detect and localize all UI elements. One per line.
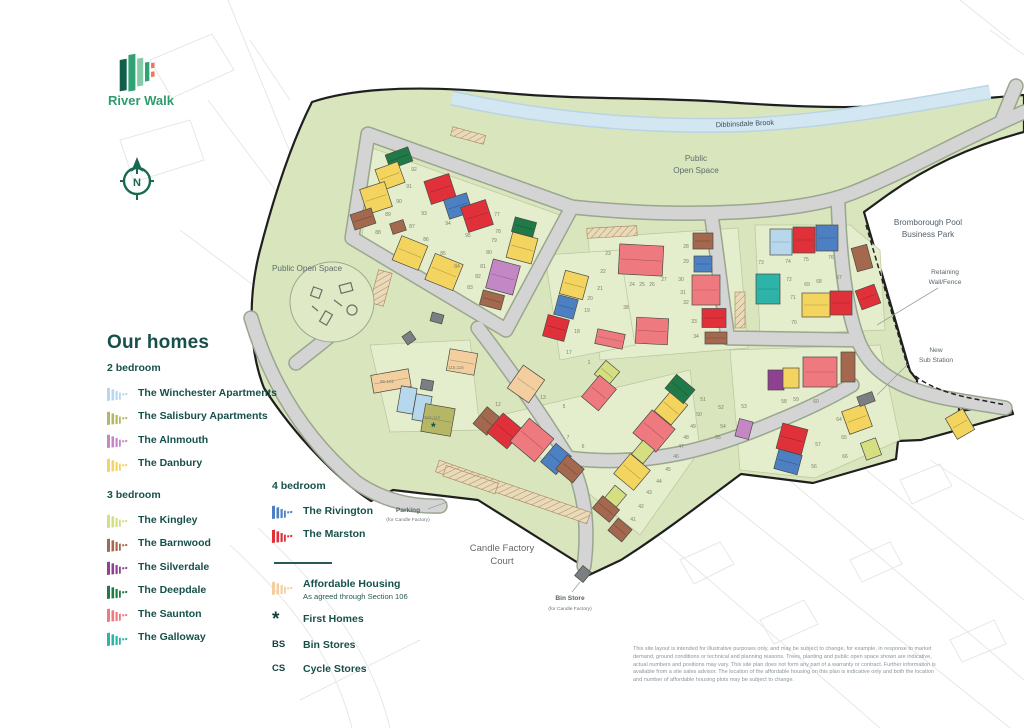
house-type-icon bbox=[107, 384, 129, 401]
label-retaining-wall: Retaining bbox=[931, 269, 959, 276]
bin-stores-symbol: BS bbox=[272, 639, 294, 651]
plot-number: 26 bbox=[649, 282, 655, 288]
plot-number: 51 bbox=[700, 397, 706, 403]
house-plot bbox=[692, 275, 720, 305]
legend-item: The Galloway bbox=[107, 626, 282, 650]
plot-number: 89 bbox=[385, 212, 391, 218]
label-bin-store: Bin Store bbox=[555, 595, 585, 602]
legend-item-label: The Salisbury Apartments bbox=[138, 410, 268, 422]
plot-number: 30 bbox=[678, 277, 684, 283]
house-plot bbox=[693, 233, 713, 249]
plot-number: 5 bbox=[563, 404, 566, 410]
plot-number: 48 bbox=[683, 435, 689, 441]
label-public-open-space-top-2: Open Space bbox=[673, 166, 719, 175]
legend-item-label: The Deepdale bbox=[138, 584, 206, 596]
plot-number: 21 bbox=[597, 286, 603, 292]
legend-title: Our homes bbox=[107, 332, 209, 354]
plot-number: 24 bbox=[629, 282, 635, 288]
legend-group-4bed: 4 bedroom The Rivington bbox=[272, 480, 462, 546]
legend-item-label: The Galloway bbox=[138, 631, 206, 643]
plot-number: 70 bbox=[791, 320, 797, 326]
cycle-stores-label: Cycle Stores bbox=[303, 663, 367, 675]
plot-number: 33 bbox=[691, 319, 697, 325]
first-homes-label: First Homes bbox=[303, 613, 364, 625]
house-plot bbox=[446, 349, 477, 376]
legend-group-title: 2 bedroom bbox=[107, 362, 282, 374]
legend-item: The Kingley bbox=[107, 508, 282, 532]
plot-number: 71 bbox=[790, 295, 796, 301]
label-public-open-space-left: Public Open Space bbox=[272, 264, 343, 273]
affordable-housing-label: Affordable Housing bbox=[303, 578, 408, 590]
bin-stores-label: Bin Stores bbox=[303, 639, 356, 651]
house-plot bbox=[618, 244, 664, 276]
plot-number: 115,116 bbox=[448, 365, 464, 370]
plot-number: 49 bbox=[690, 424, 696, 430]
label-business-park-2: Business Park bbox=[902, 230, 955, 239]
plot-number: 25 bbox=[639, 282, 645, 288]
plot-number: 90 bbox=[396, 199, 402, 205]
plot-number: 18 bbox=[574, 329, 580, 335]
plot-number: 73 bbox=[758, 260, 764, 266]
legend-item: The Rivington bbox=[272, 499, 462, 523]
plot-number: 94 bbox=[445, 221, 451, 227]
legend-item: The Deepdale bbox=[107, 579, 282, 603]
house-type-icon bbox=[107, 455, 129, 472]
plot-number: 42 bbox=[638, 504, 644, 510]
legend-group-2bed: 2 bedroom The Winchester Apartments bbox=[107, 362, 282, 475]
legend-item-label: The Rivington bbox=[303, 505, 373, 517]
plot-number: 79 bbox=[491, 238, 497, 244]
plot-number: 95 bbox=[465, 233, 471, 239]
bin-store-leader bbox=[572, 582, 580, 592]
house-plot bbox=[756, 274, 780, 304]
plot-number: 81 bbox=[480, 264, 486, 270]
legend-item: The Saunton bbox=[107, 602, 282, 626]
legend-item: The Salisbury Apartments bbox=[107, 405, 282, 429]
house-type-icon bbox=[107, 431, 129, 448]
legend-item: The Silverdale bbox=[107, 555, 282, 579]
legend-item-label: The Saunton bbox=[138, 608, 202, 620]
plot-number: 78 bbox=[495, 229, 501, 235]
house-plot bbox=[694, 256, 712, 272]
plot-number: 55 bbox=[715, 435, 721, 441]
plot-number: 43 bbox=[646, 490, 652, 496]
legend-group-title: 4 bedroom bbox=[272, 480, 462, 492]
legend-affordable-housing: Affordable Housing As agreed through Sec… bbox=[272, 578, 462, 601]
label-retaining-wall-2: Wall/Fence bbox=[929, 279, 962, 286]
plot-number: 34 bbox=[693, 334, 699, 340]
plot-number: 31 bbox=[680, 290, 686, 296]
legend-item-label: The Marston bbox=[303, 528, 365, 540]
plot-number: 72 bbox=[786, 277, 792, 283]
label-candle-factory-court-2: Court bbox=[490, 556, 514, 567]
house-type-icon bbox=[272, 526, 294, 543]
house-plot bbox=[830, 291, 852, 315]
plot-number: 46 bbox=[673, 454, 679, 460]
plot-number: 66 bbox=[842, 454, 848, 460]
legend-item: The Barnwood bbox=[107, 532, 282, 556]
affordable-housing-sublabel: As agreed through Section 106 bbox=[303, 592, 408, 601]
first-homes-star: * bbox=[431, 420, 436, 434]
north-compass-icon: N bbox=[115, 155, 159, 201]
house-plot bbox=[635, 317, 668, 345]
plot-number: 96-101 bbox=[380, 379, 395, 384]
legend-item-label: The Alnmouth bbox=[138, 434, 208, 446]
label-public-open-space-top: Public bbox=[685, 154, 707, 163]
house-plot bbox=[793, 227, 815, 253]
plot-number: 29 bbox=[683, 259, 689, 265]
plot-number: 65 bbox=[841, 435, 847, 441]
compass-n: N bbox=[133, 177, 141, 189]
legend-item: The Danbury bbox=[107, 452, 282, 476]
play-area bbox=[290, 262, 374, 342]
legend-item: The Alnmouth bbox=[107, 428, 282, 452]
plot-number: 64 bbox=[836, 417, 842, 423]
plot-number: 75 bbox=[803, 257, 809, 263]
affordable-housing-icon bbox=[272, 578, 294, 595]
site-plan-page: 9291908988878685848382818079787795949324… bbox=[0, 0, 1024, 728]
house-plot bbox=[802, 293, 830, 317]
house-type-icon bbox=[107, 558, 129, 575]
house-type-icon bbox=[107, 582, 129, 599]
plot-number: 74 bbox=[785, 259, 791, 265]
label-substation-2: Sub Station bbox=[919, 357, 953, 364]
plot-number: 50 bbox=[696, 412, 702, 418]
house-plot bbox=[702, 309, 726, 328]
house-type-icon bbox=[107, 408, 129, 425]
plot-number: 91 bbox=[406, 184, 412, 190]
plot-number: 87 bbox=[409, 224, 415, 230]
disclaimer-text: This site layout is intended for illustr… bbox=[633, 646, 941, 685]
plot-number: 53 bbox=[741, 404, 747, 410]
plot-number: 22 bbox=[600, 269, 606, 275]
plot-number: 44 bbox=[656, 479, 662, 485]
plot-number: 80 bbox=[486, 250, 492, 256]
house-type-icon bbox=[107, 535, 129, 552]
plot-number: 57 bbox=[815, 442, 821, 448]
plot-number: 1 bbox=[588, 360, 591, 366]
plot-number: 56 bbox=[811, 464, 817, 470]
plot-number: 54 bbox=[720, 424, 726, 430]
house-plot bbox=[770, 229, 792, 255]
label-business-park: Bromborough Pool bbox=[894, 218, 962, 227]
plot-number: 69 bbox=[804, 282, 810, 288]
plot-number: 28 bbox=[683, 244, 689, 250]
store-unit bbox=[420, 379, 434, 391]
plot-number: 12 bbox=[495, 402, 501, 408]
legend-item-label: The Silverdale bbox=[138, 561, 209, 573]
plot-number: 85 bbox=[440, 251, 446, 257]
legend-first-homes: * First Homes bbox=[272, 613, 462, 627]
plot-number: 17 bbox=[566, 350, 572, 356]
label-bin-store-2: (for Candle Factory) bbox=[548, 606, 592, 612]
plot-number: 32 bbox=[683, 300, 689, 306]
legend-item-label: The Barnwood bbox=[138, 537, 211, 549]
legend-column-left: 2 bedroom The Winchester Apartments bbox=[107, 362, 282, 663]
label-substation: New bbox=[929, 347, 942, 354]
first-homes-symbol: * bbox=[272, 613, 294, 627]
legend-divider bbox=[274, 562, 332, 564]
plot-number: 86 bbox=[423, 237, 429, 243]
legend-item-label: The Kingley bbox=[138, 514, 198, 526]
plot-number: 76 bbox=[828, 255, 834, 261]
legend-column-right: 4 bedroom The Rivington bbox=[272, 480, 462, 687]
plot-number: 84 bbox=[454, 264, 460, 270]
house-plot bbox=[803, 357, 837, 387]
plot-number: 7 bbox=[567, 435, 570, 441]
plot-number: 6 bbox=[582, 444, 585, 450]
house-type-icon bbox=[272, 502, 294, 519]
plot-number: 68 bbox=[816, 279, 822, 285]
legend-group-title: 3 bedroom bbox=[107, 489, 282, 501]
plot-number: 77 bbox=[494, 212, 500, 218]
legend-item-label: The Danbury bbox=[138, 457, 202, 469]
plot-number: 58 bbox=[781, 399, 787, 405]
plot-number: 67 bbox=[836, 275, 842, 281]
brand-name: River Walk bbox=[108, 93, 174, 108]
plot-number: 19 bbox=[584, 308, 590, 314]
plot-number: 60 bbox=[813, 399, 819, 405]
plot-number: 27 bbox=[661, 277, 667, 283]
house-plot bbox=[816, 225, 838, 251]
plot-number: 88 bbox=[375, 230, 381, 236]
legend-item: The Winchester Apartments bbox=[107, 381, 282, 405]
plot-number: 52 bbox=[718, 405, 724, 411]
plot-number: 59 bbox=[793, 397, 799, 403]
plot-number: 23 bbox=[605, 251, 611, 257]
plot-number: 83 bbox=[467, 285, 473, 291]
plot-number: 47 bbox=[678, 444, 684, 450]
legend-item-label: The Winchester Apartments bbox=[138, 387, 277, 399]
house-plot bbox=[705, 332, 727, 344]
legend-cycle-stores: CS Cycle Stores bbox=[272, 663, 462, 675]
legend-item: The Marston bbox=[272, 523, 462, 547]
house-plot bbox=[421, 404, 455, 437]
plot-number: 82 bbox=[475, 274, 481, 280]
legend-group-3bed: 3 bedroom The Kingley bbox=[107, 489, 282, 649]
cycle-stores-symbol: CS bbox=[272, 663, 294, 675]
plot-number: 93 bbox=[421, 211, 427, 217]
plot-number: 13 bbox=[540, 395, 546, 401]
house-plot bbox=[768, 370, 784, 390]
house-type-icon bbox=[107, 511, 129, 528]
house-type-icon bbox=[107, 629, 129, 646]
house-plot bbox=[841, 352, 855, 382]
house-type-icon bbox=[107, 605, 129, 622]
plot-number: 38 bbox=[623, 305, 629, 311]
plot-number: 92 bbox=[411, 167, 417, 173]
house-plot bbox=[783, 368, 799, 388]
river-walk-logo bbox=[112, 40, 164, 94]
legend-bin-stores: BS Bin Stores bbox=[272, 639, 462, 651]
plot-number: 45 bbox=[665, 467, 671, 473]
label-candle-factory-court: Candle Factory bbox=[470, 543, 535, 554]
plot-number: 41 bbox=[630, 517, 636, 523]
plot-number: 20 bbox=[587, 296, 593, 302]
